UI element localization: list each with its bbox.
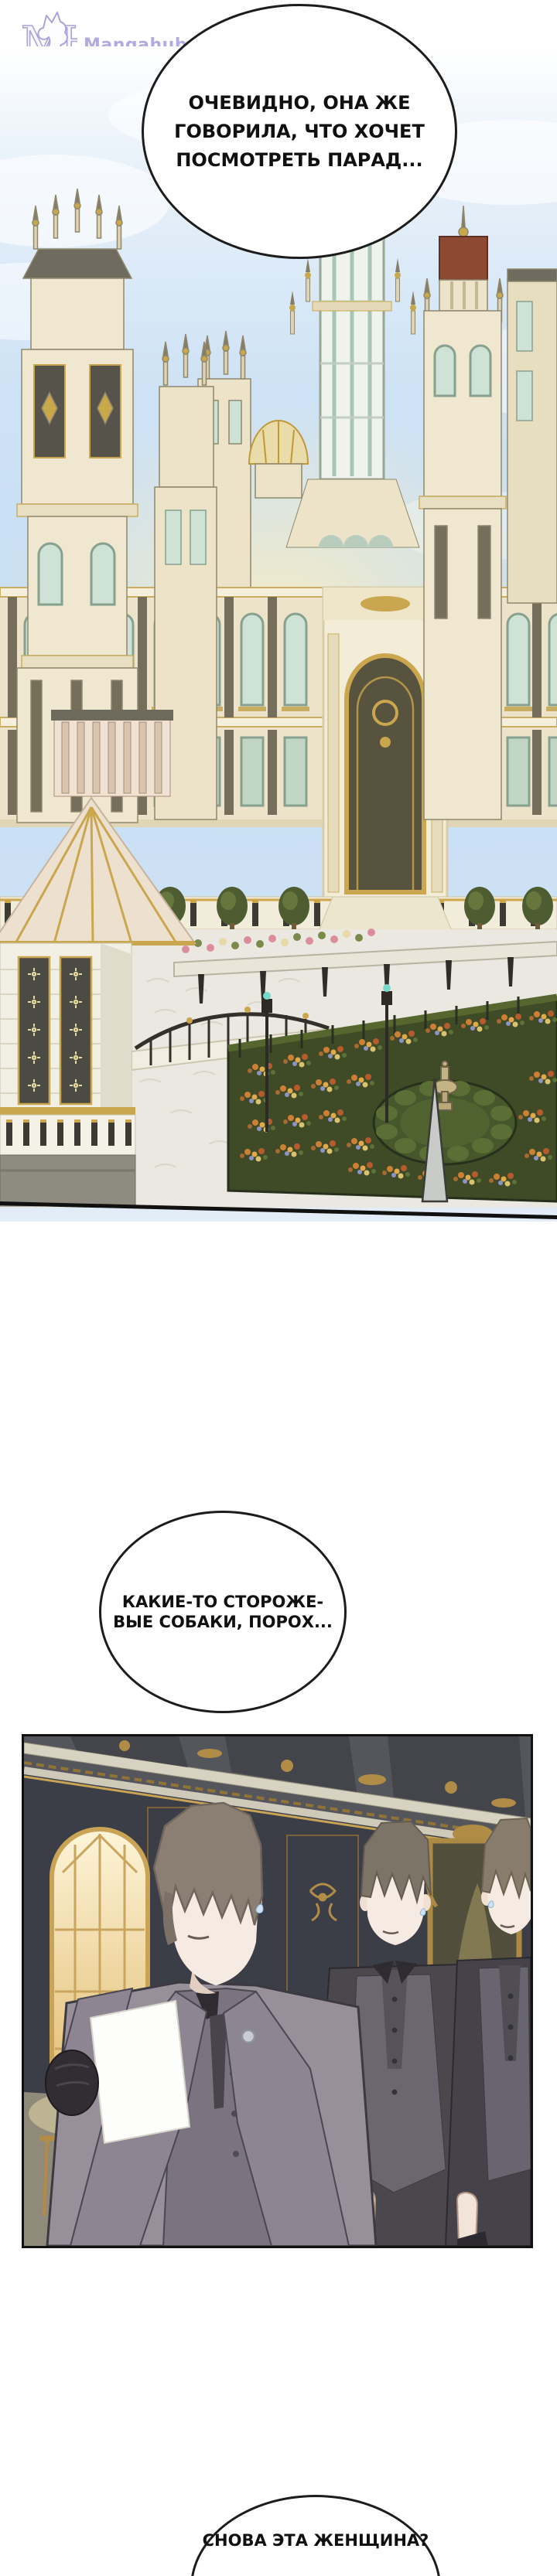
bubble-line: КАКИЕ-ТО СТОРОЖЕ-: [122, 1592, 323, 1612]
speech-bubble-3: СНОВА ЭТА ЖЕНЩИНА?: [190, 2495, 441, 2576]
bubble-line: СНОВА ЭТА ЖЕНЩИНА?: [203, 2531, 429, 2550]
bubble-line: ГОВОРИЛА, ЧТО ХОЧЕТ: [174, 118, 425, 146]
servants-hall-panel: [22, 1734, 533, 2248]
speech-bubble-2: КАКИЕ-ТО СТОРОЖЕ- ВЫЕ СОБАКИ, ПОРОХ...: [99, 1511, 347, 1713]
brooch: [242, 2030, 255, 2043]
bubble-line: ПОСМОТРЕТЬ ПАРАД...: [176, 146, 422, 175]
speech-bubble-1: ОЧЕВИДНО, ОНА ЖЕ ГОВОРИЛА, ЧТО ХОЧЕТ ПОС…: [142, 4, 457, 259]
bubble-line: ОЧЕВИДНО, ОНА ЖЕ: [188, 89, 410, 118]
document-paper: [91, 2001, 190, 2143]
manga-reader-page: MH Mangahub.space: [0, 0, 557, 2576]
red-brick-tower-top: [439, 237, 487, 280]
servants-hall-art: [24, 1736, 531, 2246]
bubble-line: ВЫЕ СОБАКИ, ПОРОХ...: [113, 1612, 333, 1632]
